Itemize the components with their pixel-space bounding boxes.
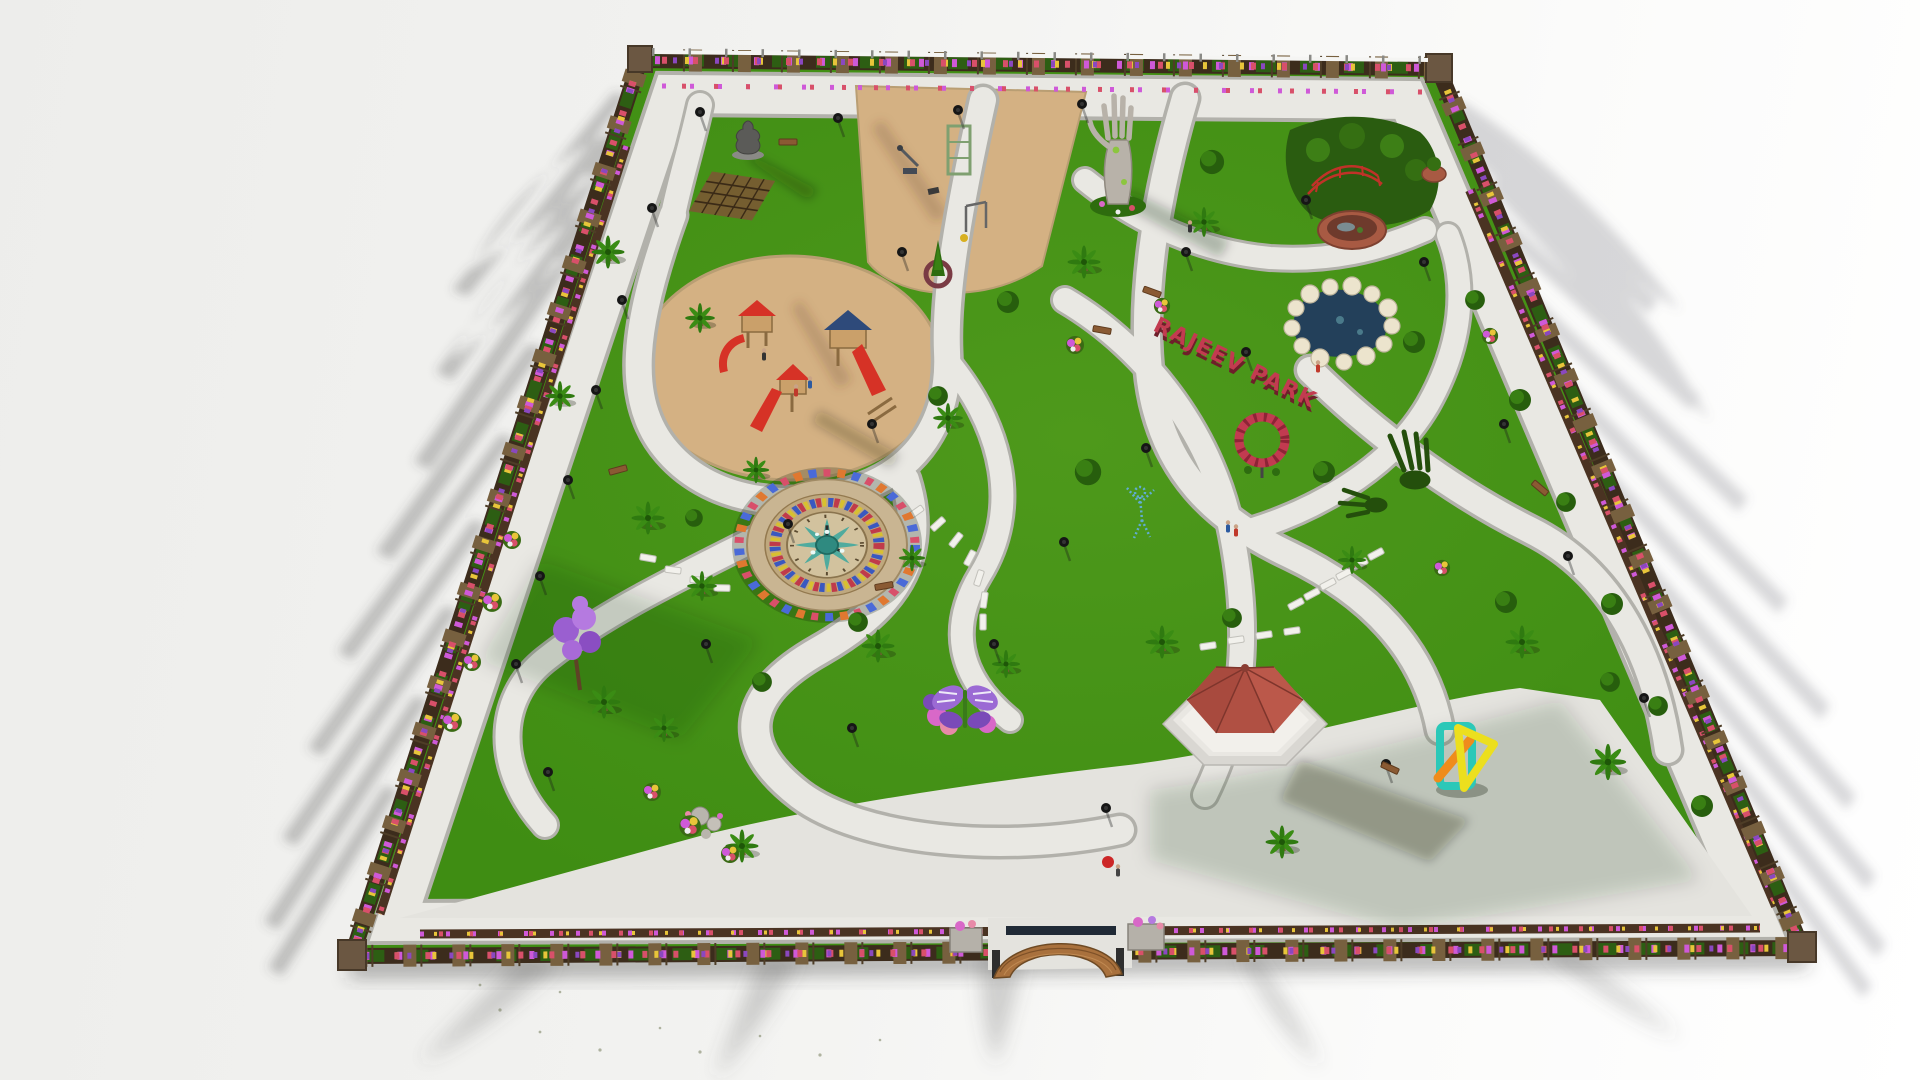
visitor [762,348,766,360]
park-render: RAJEEV PARK RAJEEV PARK [0,0,1920,1080]
grass-clipping-dots [479,984,882,1057]
red-umbrella [1102,856,1114,868]
floral-clock-fountain [732,467,922,623]
visitor [808,376,812,388]
park-grounds: RAJEEV PARK RAJEEV PARK [352,60,1802,956]
entrance-water-slot [1006,926,1116,935]
visitor [794,384,798,396]
